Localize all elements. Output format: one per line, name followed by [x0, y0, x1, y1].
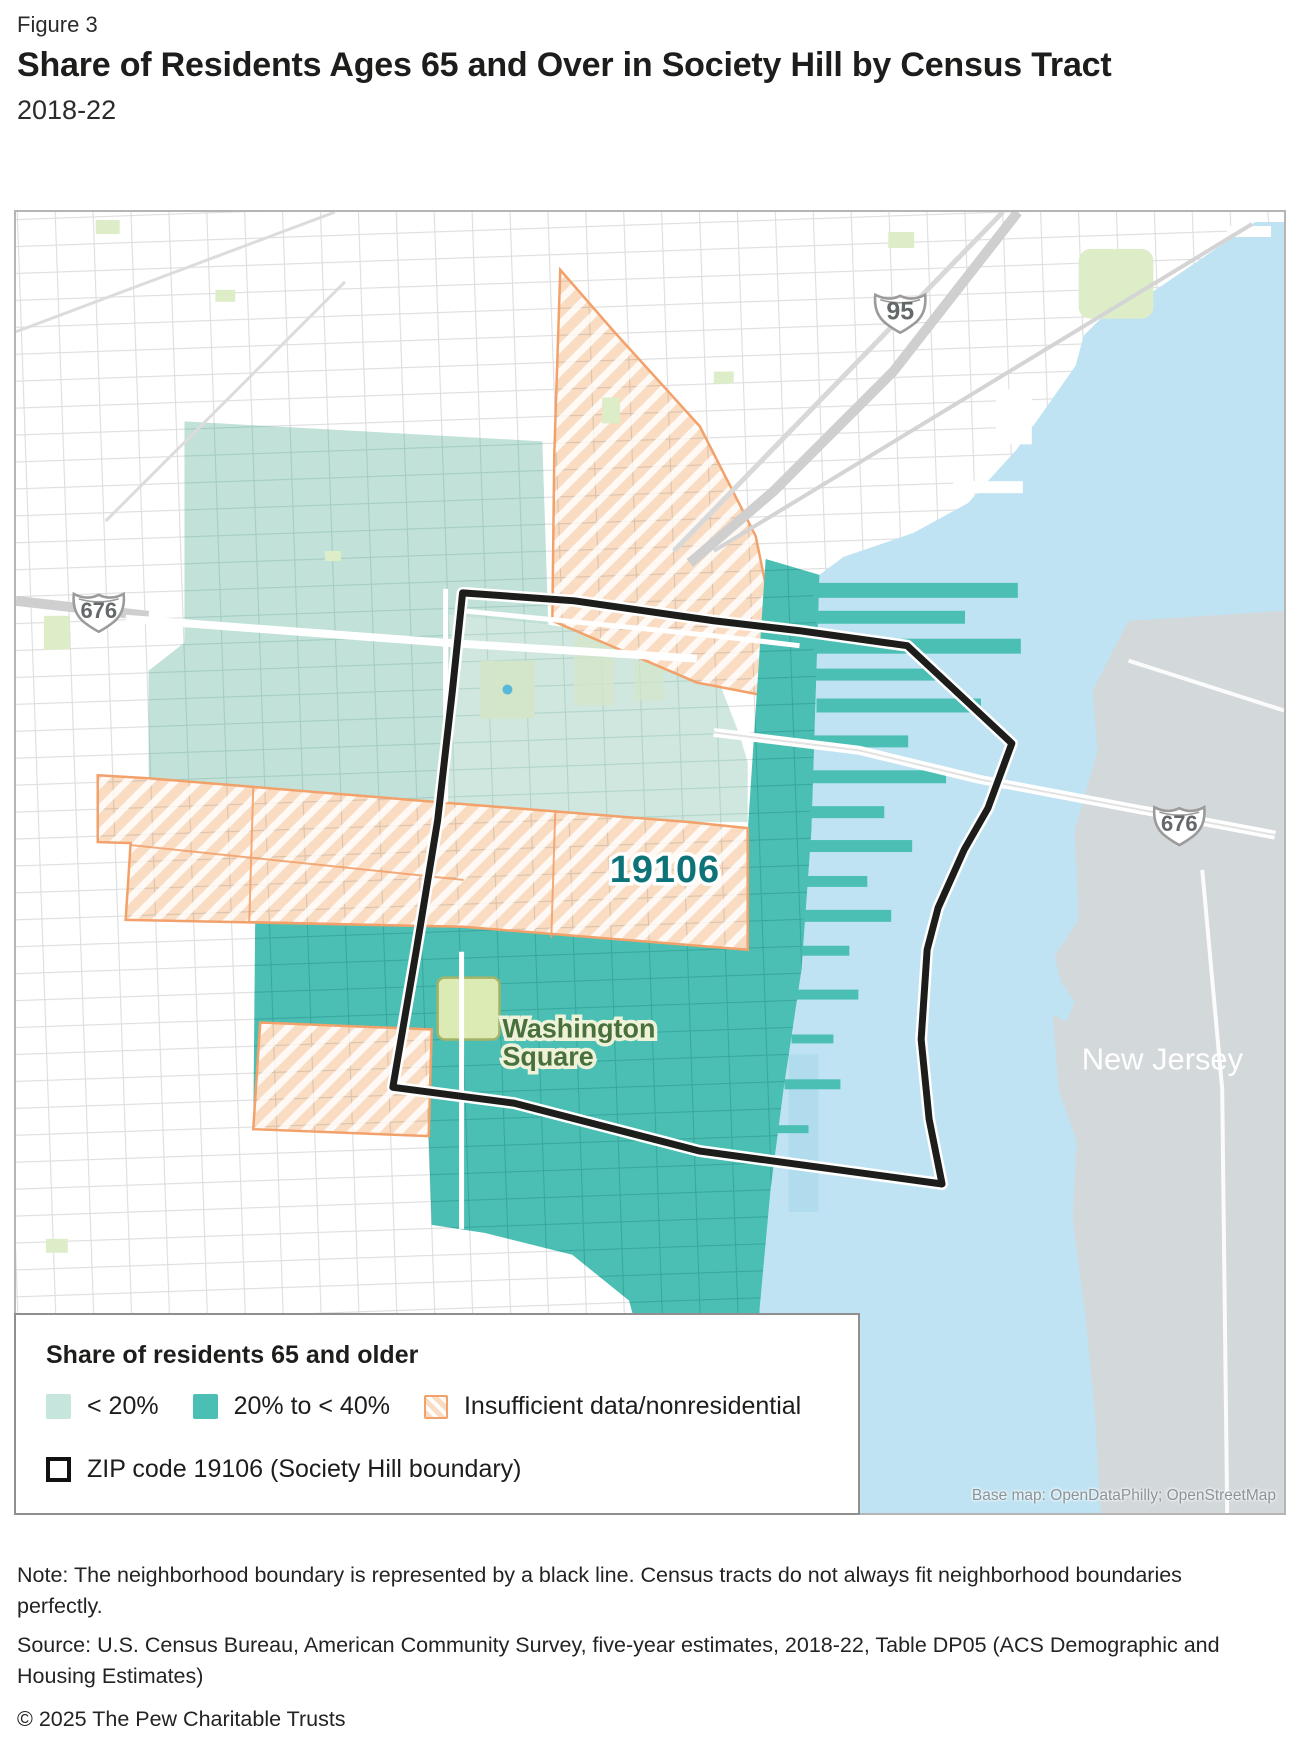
legend-item-insufficient: Insufficient data/nonresidential: [424, 1392, 801, 1421]
basemap-attribution: Base map: OpenDataPhilly; OpenStreetMap: [972, 1487, 1276, 1505]
note-line: perfectly.: [17, 1591, 1182, 1622]
i676-west-number: 676: [80, 598, 117, 623]
figure-number: Figure 3: [17, 12, 1112, 38]
zip-code-label: 19106: [610, 849, 720, 891]
map-legend: Share of residents 65 and older < 20% 20…: [14, 1313, 860, 1515]
source-text: Source: U.S. Census Bureau, American Com…: [17, 1630, 1220, 1692]
white-pier: [953, 481, 1023, 493]
legend-item-20to40: 20% to < 40%: [193, 1392, 390, 1421]
lt20-label: < 20%: [87, 1392, 159, 1421]
insufficient-swatch: [424, 1395, 448, 1419]
washington-square-label-line1: Washington: [502, 1013, 655, 1043]
new-jersey-label: New Jersey: [1082, 1041, 1244, 1076]
insufficient-label: Insufficient data/nonresidential: [464, 1392, 801, 1421]
20to40-label: 20% to < 40%: [234, 1392, 390, 1421]
washington-square-label-line2: Square: [502, 1041, 593, 1071]
washington-square-park: [438, 978, 500, 1040]
franklin-square-fountain: [502, 685, 512, 695]
source-line: Source: U.S. Census Bureau, American Com…: [17, 1630, 1220, 1661]
legend-zip-row: ZIP code 19106 (Society Hill boundary): [46, 1455, 858, 1484]
zip-boundary-swatch: [46, 1457, 71, 1482]
source-line: Housing Estimates): [17, 1661, 1220, 1692]
i95-number: 95: [886, 298, 914, 326]
white-pier: [996, 389, 1032, 444]
figure-title: Share of Residents Ages 65 and Over in S…: [17, 46, 1112, 85]
i676-nj-number: 676: [1161, 811, 1198, 836]
20to40-swatch: [193, 1394, 218, 1419]
zip-boundary-label: ZIP code 19106 (Society Hill boundary): [87, 1455, 522, 1484]
note-line: Note: The neighborhood boundary is repre…: [17, 1560, 1182, 1591]
independence-mall-green: [574, 636, 614, 706]
legend-item-lt20: < 20%: [46, 1392, 159, 1421]
figure-subtitle: 2018-22: [17, 95, 1112, 126]
legend-share-row: < 20% 20% to < 40% Insufficient data/non…: [46, 1392, 858, 1421]
note-text: Note: The neighborhood boundary is repre…: [17, 1560, 1182, 1622]
figure-header: Figure 3 Share of Residents Ages 65 and …: [17, 12, 1112, 126]
copyright-text: © 2025 The Pew Charitable Trusts: [17, 1704, 346, 1735]
legend-heading: Share of residents 65 and older: [46, 1341, 858, 1370]
lt20-swatch: [46, 1394, 71, 1419]
legend-item-zip-boundary: ZIP code 19106 (Society Hill boundary): [46, 1455, 522, 1484]
